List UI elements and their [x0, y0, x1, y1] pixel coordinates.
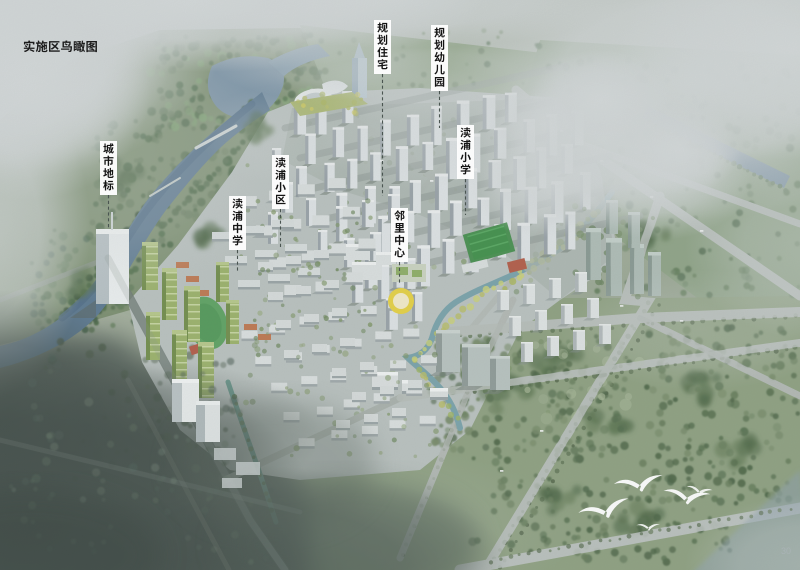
- svg-text:30: 30: [781, 546, 791, 556]
